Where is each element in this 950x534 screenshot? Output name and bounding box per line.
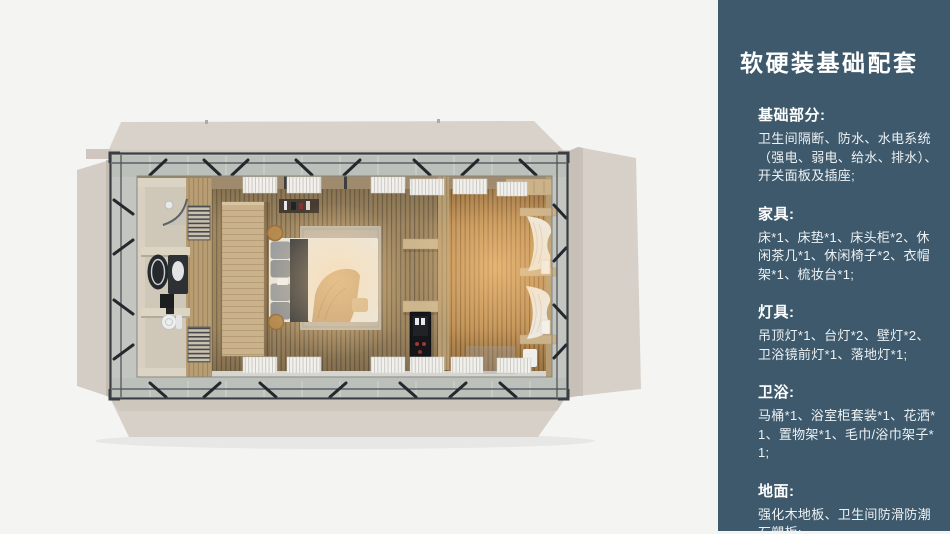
bathroom-divider <box>141 247 190 255</box>
bathroom <box>137 178 212 377</box>
section-body: 床*1、床垫*1、床头柜*2、休闲茶几*1、休闲椅子*2、衣帽架*1、梳妆台*1… <box>758 229 940 285</box>
wash-basin <box>172 261 184 281</box>
section-basics: 基础部分: 卫生间隔断、防水、水电系统（强电、弱电、给水、排水）、开关面板及插座… <box>758 104 940 186</box>
slide-canvas: 软硬装基础配套 基础部分: 卫生间隔断、防水、水电系统（强电、弱电、给水、排水）… <box>0 0 950 534</box>
room-render <box>0 0 718 534</box>
section-lighting: 灯具: 吊顶灯*1、台灯*2、壁灯*2、卫浴镜前灯*1、落地灯*1; <box>758 301 940 364</box>
sidebar-title: 软硬装基础配套 <box>740 44 936 78</box>
section-heading: 卫浴: <box>758 381 940 402</box>
toilet <box>162 315 183 330</box>
section-heading: 灯具: <box>758 301 940 322</box>
section-body: 马桶*1、浴室柜套装*1、花洒*1、置物架*1、毛巾/浴巾架子*1; <box>758 407 940 463</box>
section-body: 吊顶灯*1、台灯*2、壁灯*2、卫浴镜前灯*1、落地灯*1; <box>758 327 940 364</box>
folded-wall-panel-bottom <box>111 400 564 437</box>
section-heading: 基础部分: <box>758 104 940 125</box>
section-heading: 地面: <box>758 480 940 501</box>
section-body: 强化木地板、卫生间防滑防潮石塑板; <box>758 506 940 534</box>
section-flooring: 地面: 强化木地板、卫生间防滑防潮石塑板; <box>758 480 940 534</box>
shower-head <box>165 201 173 209</box>
bathroom-divider <box>141 308 190 316</box>
lamp-glow <box>212 176 552 377</box>
towel-radiator <box>188 327 210 362</box>
folded-wall-panel-right <box>578 147 641 396</box>
towel-radiator <box>188 206 210 240</box>
section-heading: 家具: <box>758 203 940 224</box>
folded-wall-panel-left <box>77 160 110 397</box>
section-body: 卫生间隔断、防水、水电系统（强电、弱电、给水、排水）、开关面板及插座; <box>758 130 940 186</box>
section-furniture: 家具: 床*1、床垫*1、床头柜*2、休闲茶几*1、休闲椅子*2、衣帽架*1、梳… <box>758 203 940 285</box>
section-sanitary: 卫浴: 马桶*1、浴室柜套装*1、花洒*1、置物架*1、毛巾/浴巾架子*1; <box>758 381 940 463</box>
spec-sidebar: 软硬装基础配套 基础部分: 卫生间隔断、防水、水电系统（强电、弱电、给水、排水）… <box>718 0 950 531</box>
